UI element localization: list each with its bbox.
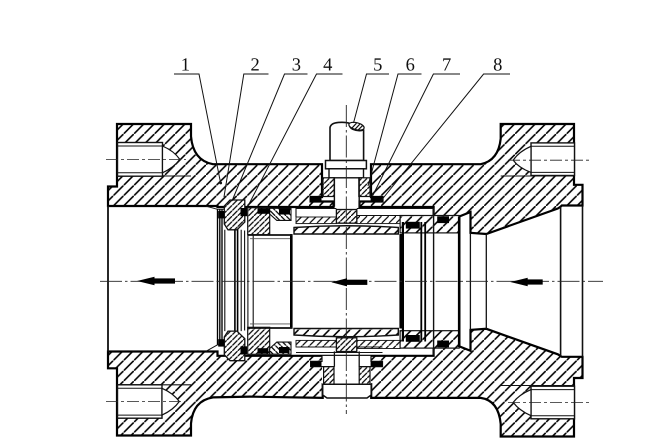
svg-text:7: 7 <box>442 56 451 76</box>
svg-text:2: 2 <box>250 56 259 76</box>
svg-text:8: 8 <box>493 56 502 76</box>
svg-text:5: 5 <box>373 56 382 76</box>
svg-text:6: 6 <box>406 56 415 76</box>
svg-text:4: 4 <box>323 56 332 76</box>
svg-text:3: 3 <box>292 56 301 76</box>
svg-text:1: 1 <box>181 56 190 76</box>
